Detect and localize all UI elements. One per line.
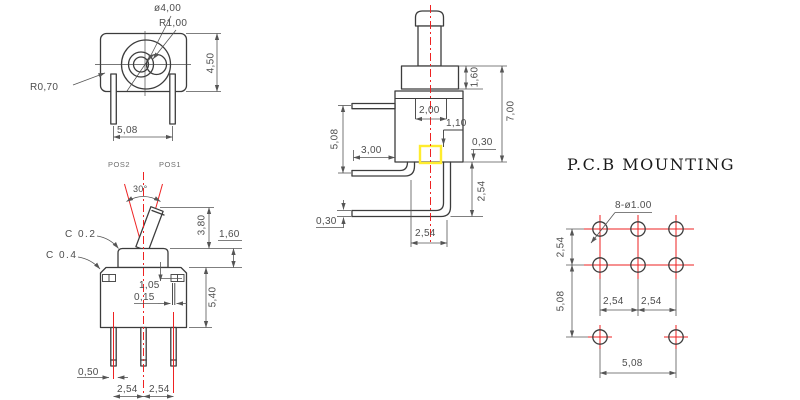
pcb-view-row-pitch-label: 2,54	[556, 237, 567, 258]
front-view-slot-offset-label: 1,05	[139, 280, 160, 291]
front-view-lever-length-label: 3,80	[197, 215, 208, 236]
side-view-bushing-height-label: 1,60	[470, 67, 481, 88]
front-view-chamfer-body-label: C 0.4	[46, 250, 77, 261]
pcb-mounting-linework	[566, 213, 694, 379]
pcb-view-col-pitch-left-label: 2,54	[603, 296, 624, 307]
side-view-linework	[316, 5, 507, 247]
side-view-overall-height-label: 7,00	[506, 101, 517, 122]
side-view-pin-thickness-upper-label: 0,30	[472, 137, 493, 148]
front-view-pos1-label: POS1	[159, 161, 181, 169]
front-view-body-height-label: 5,40	[208, 287, 219, 308]
front-view-chamfer-bushing-label: C 0.2	[65, 229, 96, 240]
technical-drawing: ø4,00 R1,00 R0,70 5,08 4,50 POS2 POS1 30…	[0, 0, 800, 400]
front-view-throw-angle-label: 30°	[133, 185, 148, 195]
front-view-pos2-label: POS2	[108, 161, 130, 169]
pcb-view-title: P.C.B MOUNTING	[567, 156, 735, 174]
top-view-linework	[73, 16, 221, 141]
pcb-view-col-span-label: 5,08	[622, 358, 643, 369]
front-view-pin-thickness-label: 0,50	[78, 367, 99, 378]
drawing-linework	[0, 0, 800, 400]
top-view-lever-radius-label: R1,00	[159, 18, 187, 29]
side-view-actuator-slot-label: 2,00	[419, 105, 440, 116]
side-view-inner-step-label: 1,10	[446, 118, 467, 129]
side-view-pin-row-spacing-label: 5,08	[330, 129, 341, 150]
pcb-view-hole-callout-label: 8-ø1.00	[615, 200, 652, 211]
side-view-bend-spacing-label: 2,54	[415, 228, 436, 239]
front-view-pin-pitch-right-label: 2,54	[149, 384, 170, 395]
top-view-pin-spacing-label: 5,08	[117, 125, 138, 136]
top-view-hole-diameter-label: ø4,00	[154, 3, 181, 14]
top-view-corner-radius-label: R0,70	[30, 82, 58, 93]
front-view-bushing-height-label: 1,60	[219, 229, 240, 240]
top-view-body-depth-label: 4,50	[206, 53, 217, 74]
front-view-pin-pitch-left-label: 2,54	[117, 384, 138, 395]
side-view-pin-protrusion-label: 3,00	[361, 145, 382, 156]
front-view-slot-width-label: 0,15	[134, 292, 155, 303]
pcb-view-col-pitch-right-label: 2,54	[641, 296, 662, 307]
side-view-row-drop-label: 2,54	[477, 181, 488, 202]
side-view-pin-thickness-lower-label: 0,30	[316, 216, 337, 227]
pcb-view-row-span-label: 5,08	[556, 291, 567, 312]
